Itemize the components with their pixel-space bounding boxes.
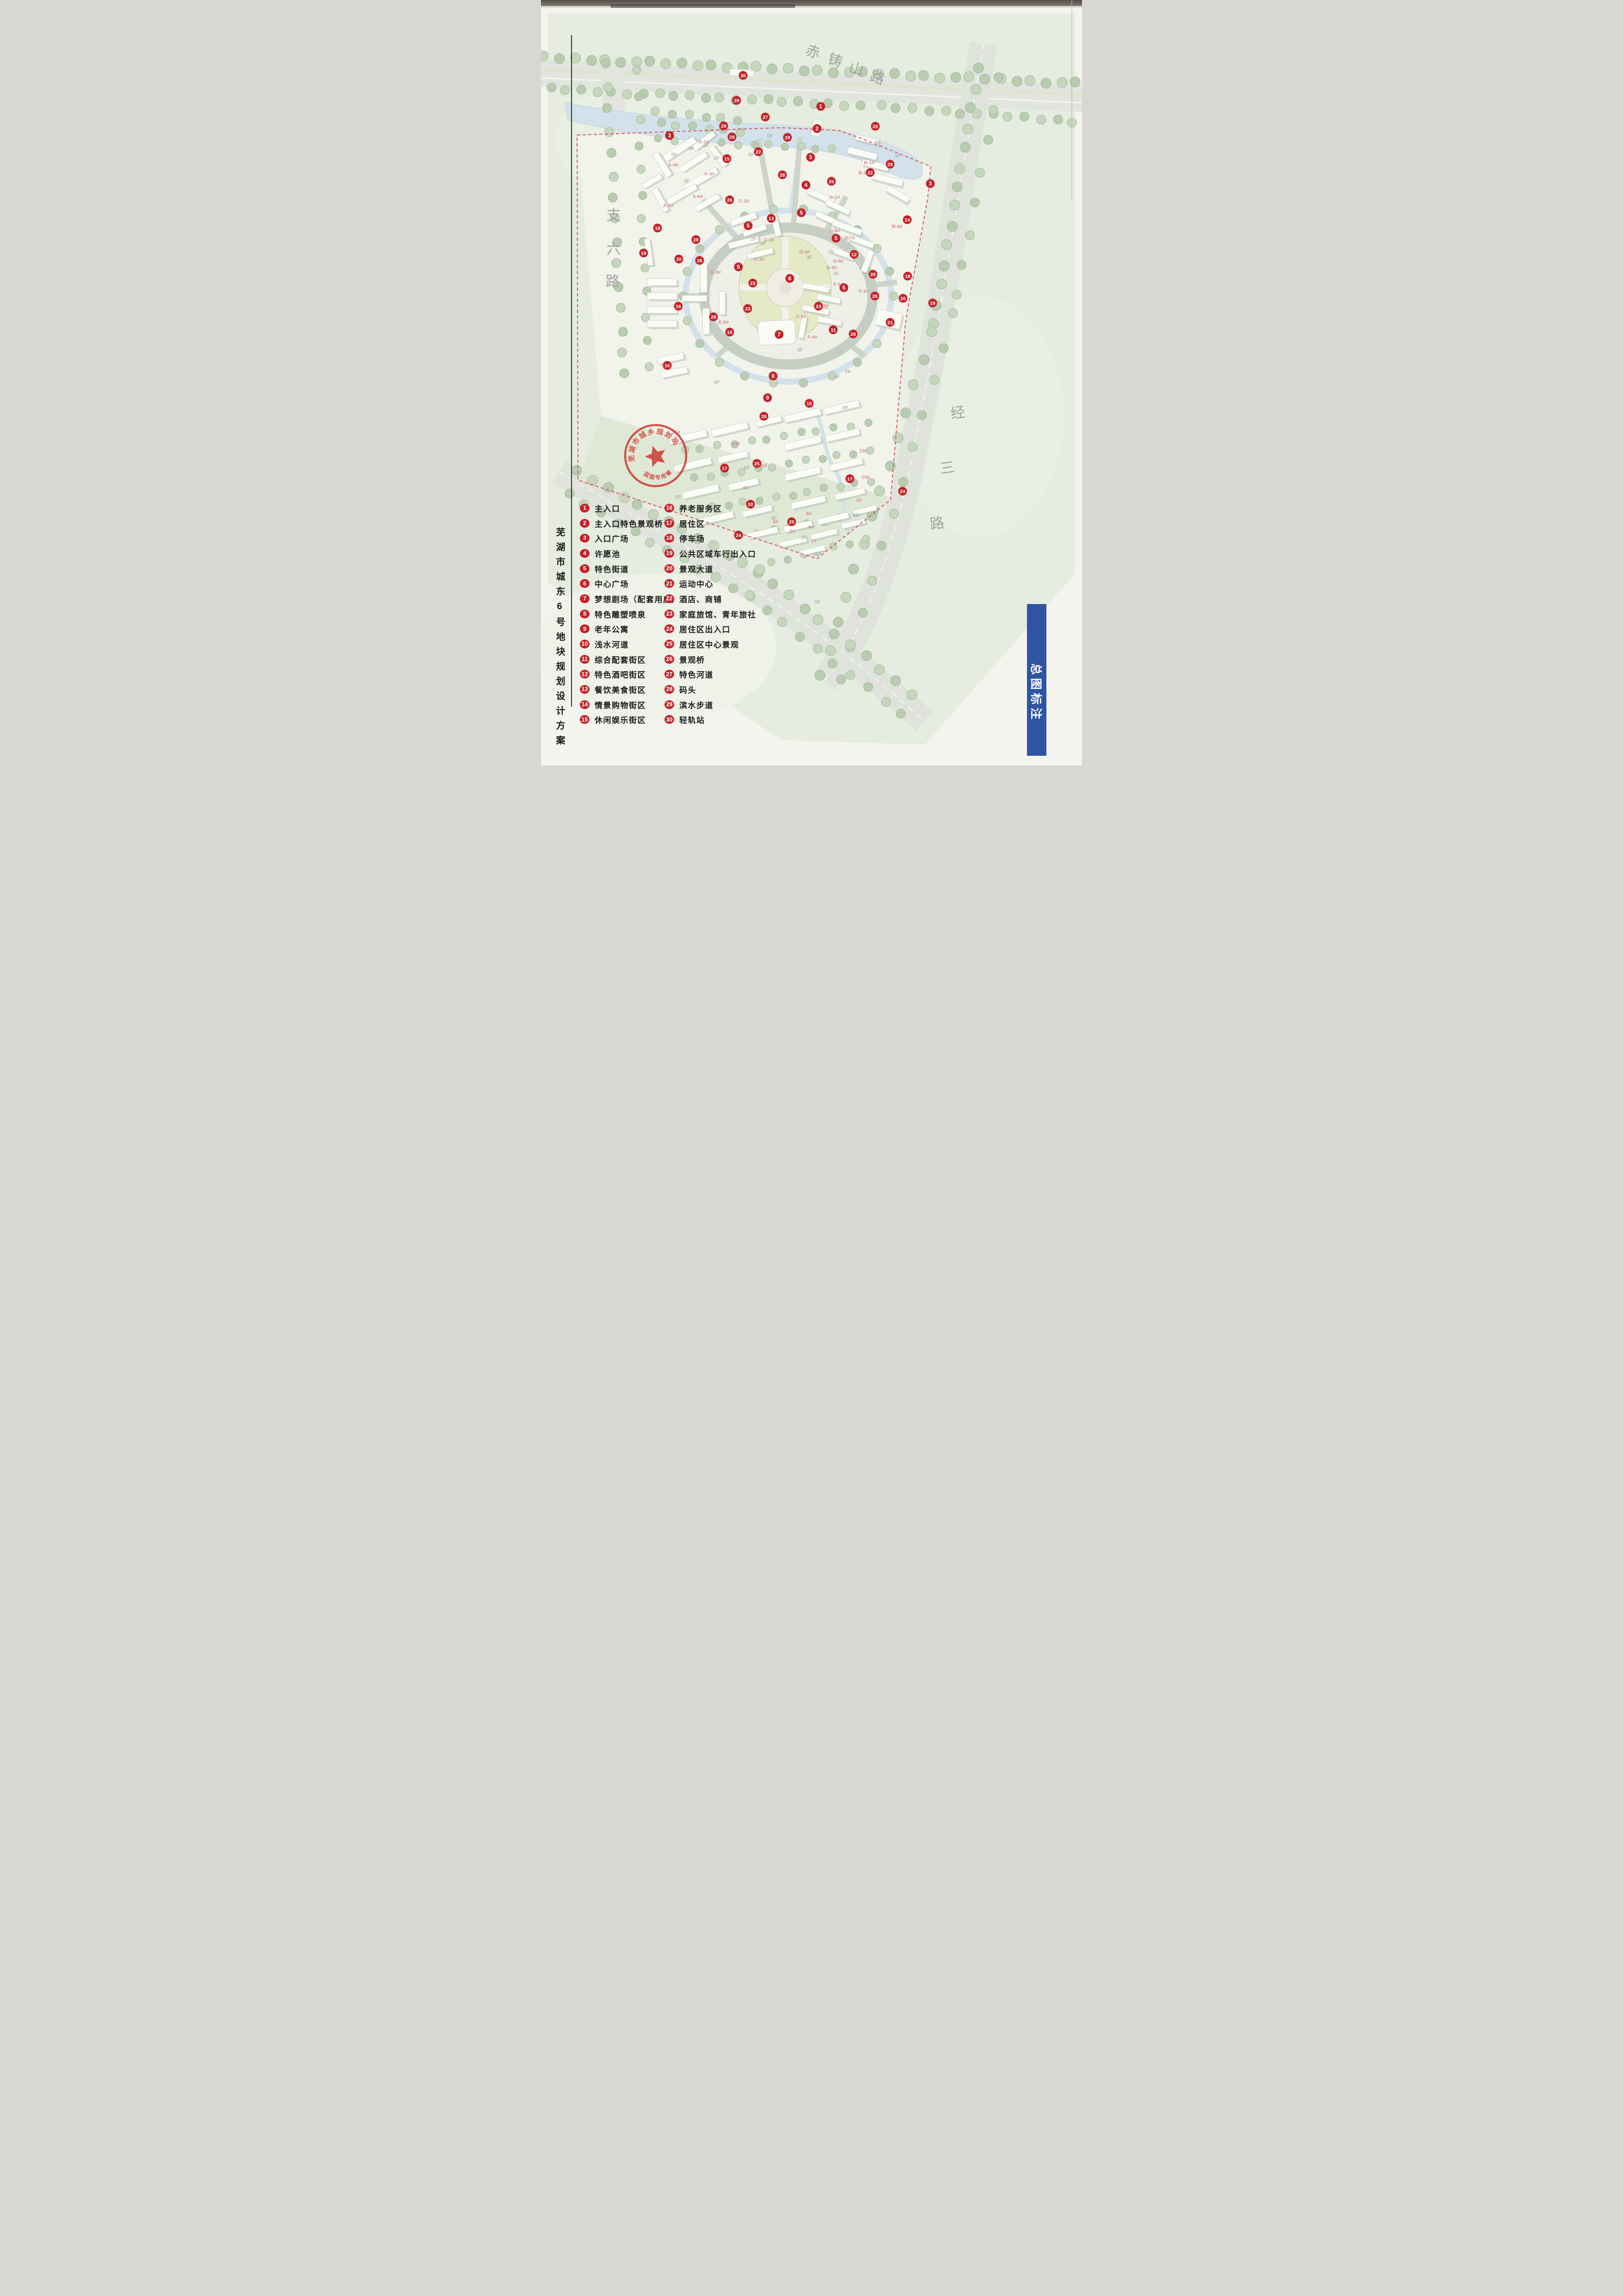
legend-number-badge: 10 xyxy=(580,640,590,648)
building-block xyxy=(647,279,679,288)
tree-icon xyxy=(643,336,652,345)
tree-icon xyxy=(701,93,711,103)
map-marker: 16 xyxy=(674,302,683,311)
map-marker-number: 15 xyxy=(724,156,730,162)
map-marker: 21 xyxy=(886,318,895,327)
map-marker: 24 xyxy=(898,487,907,496)
map-marker: 12 xyxy=(850,250,859,259)
road-name-char: 路 xyxy=(606,273,620,290)
legend-label: 居住区 xyxy=(679,518,705,529)
building-id-label: 14# xyxy=(732,441,740,447)
tree-icon xyxy=(881,697,891,707)
map-marker: 15 xyxy=(723,154,732,163)
tree-icon xyxy=(749,437,756,444)
legend-number-badge: 19 xyxy=(664,549,674,558)
legend-number-badge: 20 xyxy=(664,564,674,573)
map-marker-number: 16 xyxy=(664,363,670,369)
sheet-title-tab: 总图标注 xyxy=(1027,604,1046,756)
tree-icon xyxy=(965,103,975,113)
map-marker-number: 19 xyxy=(641,251,646,256)
legend-number-badge: 11 xyxy=(580,655,590,664)
tree-icon xyxy=(877,100,886,110)
tree-icon xyxy=(612,259,621,268)
building-id-label: 7# xyxy=(845,369,850,375)
tree-icon xyxy=(605,128,614,137)
building-id-label: C-3# xyxy=(754,257,765,262)
tree-icon xyxy=(690,474,698,481)
tree-icon xyxy=(634,93,643,101)
legend-item: 23家庭旅馆、青年旅社 xyxy=(664,606,756,622)
tree-icon xyxy=(765,141,772,148)
tree-icon xyxy=(819,455,826,463)
tree-icon xyxy=(893,433,903,443)
project-vertical-title: 芜湖市城东6号地块规划设计方案 xyxy=(553,527,566,759)
tree-icon xyxy=(560,86,570,95)
legend-item: 29滨水步道 xyxy=(664,697,756,712)
tree-icon xyxy=(965,231,975,240)
map-marker: 29 xyxy=(728,133,737,142)
map-marker: 26 xyxy=(695,256,704,265)
tree-icon xyxy=(957,260,966,270)
road-name-char: 路 xyxy=(929,514,946,532)
map-marker: 26 xyxy=(760,412,768,421)
tree-icon xyxy=(925,106,934,116)
map-marker: 22 xyxy=(866,168,875,177)
tree-icon xyxy=(908,103,917,112)
tree-icon xyxy=(716,113,725,122)
tree-icon xyxy=(840,101,849,111)
tree-icon xyxy=(1053,115,1063,124)
tree-icon xyxy=(617,348,627,357)
tree-icon xyxy=(654,135,662,142)
legend-number-badge: 23 xyxy=(664,610,674,618)
tree-icon xyxy=(947,221,958,231)
tree-icon xyxy=(685,110,694,118)
tree-icon xyxy=(864,682,873,691)
tree-icon xyxy=(939,261,949,271)
map-marker: 20 xyxy=(675,255,683,264)
map-marker: 3 xyxy=(806,153,815,162)
building-id-label: A-3# xyxy=(704,171,715,177)
tree-icon xyxy=(865,419,872,426)
building-id-label: B-4# xyxy=(892,224,903,229)
floor-count-label: 2F xyxy=(767,134,773,139)
map-marker: 17 xyxy=(720,464,729,473)
tree-icon xyxy=(1003,112,1012,121)
building-id-label: D-5# xyxy=(827,265,837,271)
tree-icon xyxy=(964,72,974,82)
tree-icon xyxy=(952,182,962,192)
tree-icon xyxy=(858,608,867,617)
building-id-label: A-1# xyxy=(699,139,709,145)
tree-icon xyxy=(918,70,928,80)
tree-icon xyxy=(907,690,917,700)
map-marker: 10 xyxy=(805,399,814,408)
building-id-label: F-5# xyxy=(796,314,806,320)
tree-icon xyxy=(934,73,945,83)
tree-icon xyxy=(763,436,770,444)
tree-icon xyxy=(799,66,810,76)
map-marker: 13 xyxy=(767,214,776,223)
tree-icon xyxy=(919,355,929,365)
tree-icon xyxy=(768,464,776,471)
tree-icon xyxy=(795,632,805,642)
tree-icon xyxy=(890,68,900,79)
map-marker: 18 xyxy=(653,224,662,233)
tree-icon xyxy=(715,358,724,367)
map-marker: 23 xyxy=(814,302,823,311)
legend-label: 轻轨站 xyxy=(679,714,705,725)
map-marker-number: 28 xyxy=(693,237,699,243)
map-marker-number: 28 xyxy=(850,332,856,337)
building-id-label: A-5# xyxy=(663,203,674,209)
tree-icon xyxy=(1057,77,1067,87)
map-marker-number: 3 xyxy=(929,180,932,187)
tree-icon xyxy=(623,90,632,99)
map-marker-number: 29 xyxy=(887,162,893,167)
tree-icon xyxy=(1041,78,1051,88)
map-marker: 28 xyxy=(709,313,718,321)
legend-item: 18停车场 xyxy=(664,531,756,546)
map-marker-number: 5 xyxy=(800,210,803,216)
legend-item: 21运动中心 xyxy=(664,576,756,591)
tree-icon xyxy=(571,53,581,63)
tree-icon xyxy=(950,200,960,210)
tree-icon xyxy=(645,363,653,371)
legend-item: 27特色河道 xyxy=(664,667,756,682)
legend-label: 养老服务区 xyxy=(679,502,722,514)
legend-number-badge: 9 xyxy=(580,624,590,633)
tree-icon xyxy=(951,72,961,82)
tree-icon xyxy=(908,442,917,451)
tree-icon xyxy=(547,83,556,92)
legend-label: 停车场 xyxy=(679,532,705,544)
building-id-label: B-1# xyxy=(864,160,875,166)
map-marker-number: 3 xyxy=(668,132,671,139)
tree-icon xyxy=(565,489,574,498)
tree-icon xyxy=(1012,76,1022,86)
tree-icon xyxy=(601,59,610,68)
tree-icon xyxy=(683,317,691,325)
tree-icon xyxy=(846,671,855,680)
map-marker-number: 17 xyxy=(847,476,853,482)
legend-label: 许愿池 xyxy=(595,548,621,559)
tree-icon xyxy=(899,477,908,487)
map-marker-number: 24 xyxy=(900,489,905,494)
legend-label: 特色街道 xyxy=(595,563,629,574)
paper-edge-right xyxy=(1071,0,1072,199)
tree-icon xyxy=(780,432,787,439)
legend-number-badge: 28 xyxy=(664,685,674,694)
map-marker: 16 xyxy=(663,361,672,370)
legend-number-badge: 1 xyxy=(580,504,590,512)
tree-icon xyxy=(702,113,711,122)
building-id-label: 6# xyxy=(743,485,749,491)
legend-item: 28码头 xyxy=(664,682,756,697)
map-marker: 4 xyxy=(802,181,811,190)
legend-label: 居住区中心景观 xyxy=(679,638,739,650)
tree-icon xyxy=(890,292,898,300)
map-marker-number: 2 xyxy=(816,125,819,132)
tree-icon xyxy=(695,339,704,348)
tree-icon xyxy=(813,615,823,625)
legend-item: 17居住区 xyxy=(664,516,756,531)
tree-icon xyxy=(790,492,797,500)
tree-icon xyxy=(908,380,918,390)
building-id-label: C-1# xyxy=(739,198,750,204)
tree-icon xyxy=(635,142,643,150)
tree-icon xyxy=(885,461,896,471)
legend-item: 30轻轨站 xyxy=(664,712,756,728)
tree-icon xyxy=(954,164,965,174)
map-marker-number: 5 xyxy=(737,264,740,270)
tree-icon xyxy=(955,109,965,118)
legend-number-badge: 27 xyxy=(664,670,674,679)
tree-icon xyxy=(677,58,687,68)
floor-count-label: 6F xyxy=(842,405,848,411)
map-marker: 23 xyxy=(744,304,752,313)
map-marker-number: 29 xyxy=(721,123,726,129)
map-marker-number: 3 xyxy=(809,154,812,160)
tree-icon xyxy=(849,451,857,458)
tree-icon xyxy=(813,644,823,653)
tree-icon xyxy=(554,54,565,64)
map-marker-number: 22 xyxy=(867,170,873,176)
tree-icon xyxy=(609,172,618,181)
tree-icon xyxy=(607,148,616,157)
map-marker-number: 6 xyxy=(788,275,792,282)
tree-icon xyxy=(901,408,911,418)
map-marker-number: 25 xyxy=(754,461,760,467)
legend-number-badge: 29 xyxy=(664,700,674,709)
tree-icon xyxy=(793,97,803,106)
tree-icon xyxy=(637,215,646,223)
map-marker-number: 26 xyxy=(761,414,767,420)
tree-icon xyxy=(975,168,984,177)
floor-count-label: 6F xyxy=(853,512,859,518)
tree-icon xyxy=(867,447,874,454)
building-id-label: E-6# xyxy=(719,320,729,325)
building-block xyxy=(703,309,712,336)
map-marker: 29 xyxy=(719,122,728,130)
road-name-char: 支 xyxy=(607,207,621,223)
map-marker: 14 xyxy=(903,216,912,224)
tree-icon xyxy=(572,465,582,475)
tree-icon xyxy=(896,709,905,718)
map-marker-number: 20 xyxy=(900,296,906,302)
tree-icon xyxy=(769,205,778,213)
map-marker: 29 xyxy=(871,122,880,131)
map-marker-number: 5 xyxy=(842,284,846,291)
map-marker-number: 28 xyxy=(870,272,876,278)
floor-count-label: 3F xyxy=(806,255,812,260)
legend-label: 休闲娱乐街区 xyxy=(595,714,646,725)
tree-icon xyxy=(767,64,777,74)
tree-icon xyxy=(798,142,805,150)
tree-icon xyxy=(948,309,958,318)
map-marker-number: 18 xyxy=(905,274,910,279)
legend-label: 主入口特色景观桥 xyxy=(595,518,663,529)
tree-icon xyxy=(874,665,885,675)
tree-icon xyxy=(633,66,641,74)
map-marker-number: 27 xyxy=(762,115,768,120)
map-marker: 30 xyxy=(739,71,748,80)
tree-icon xyxy=(636,116,645,124)
tree-icon xyxy=(994,73,1003,82)
map-marker: 26 xyxy=(827,177,836,186)
map-marker: 5 xyxy=(797,209,806,217)
map-marker-number: 9 xyxy=(766,395,769,401)
tree-icon xyxy=(833,451,840,459)
tree-icon xyxy=(756,497,763,505)
legend-label: 浅水河道 xyxy=(595,638,629,650)
tree-icon xyxy=(748,95,757,104)
sheet-title-text: 总图标注 xyxy=(1028,663,1045,722)
building-id-label: F-2# xyxy=(859,289,869,294)
map-marker-number: 28 xyxy=(785,135,790,141)
legend-number-badge: 22 xyxy=(664,594,674,603)
tree-icon xyxy=(618,327,627,336)
map-marker-number: 20 xyxy=(676,257,682,262)
building-id-label: D-8# xyxy=(833,259,844,264)
tree-icon xyxy=(734,142,742,149)
map-marker: 18 xyxy=(904,272,912,281)
legend-number-badge: 13 xyxy=(580,685,590,694)
map-marker: 16 xyxy=(725,328,734,337)
tree-icon xyxy=(763,605,772,615)
building-block xyxy=(647,307,679,315)
map-marker: 28 xyxy=(783,133,792,142)
tree-icon xyxy=(971,198,980,207)
floor-count-label: 3F xyxy=(797,347,803,353)
legend-item: 26景观桥 xyxy=(664,652,756,667)
map-marker-number: 29 xyxy=(873,124,878,130)
tree-icon xyxy=(603,83,613,92)
map-marker-number: 5 xyxy=(747,222,750,229)
legend-number-badge: 24 xyxy=(664,624,674,633)
map-marker: 7 xyxy=(775,330,784,339)
floor-count-label: 6F xyxy=(749,152,755,158)
map-marker: 23 xyxy=(749,279,757,288)
building-block xyxy=(719,291,727,316)
building-id-label: D-4# xyxy=(799,249,810,255)
tree-icon xyxy=(960,142,971,152)
floor-count-label: 6F xyxy=(771,516,777,521)
building-id-label: 10# xyxy=(861,475,870,480)
tree-icon xyxy=(639,191,647,200)
legend-label: 特色河道 xyxy=(679,668,713,680)
building-block xyxy=(647,293,679,302)
legend-number-badge: 2 xyxy=(580,519,590,528)
tree-icon xyxy=(873,339,881,348)
tree-icon xyxy=(891,104,900,113)
floor-count-label: 5F xyxy=(815,599,821,605)
floor-count-label: 6F xyxy=(801,535,807,541)
map-marker: 25 xyxy=(787,518,796,526)
tree-icon xyxy=(927,327,937,337)
tree-icon xyxy=(645,56,655,66)
tree-icon xyxy=(803,488,811,495)
floor-count-label: 6F xyxy=(744,465,750,471)
tree-icon xyxy=(802,456,810,463)
tree-icon xyxy=(856,101,865,110)
legend-number-badge: 6 xyxy=(580,579,590,588)
map-marker-number: 26 xyxy=(872,294,878,299)
legend-label: 情景购物街区 xyxy=(595,699,646,710)
map-marker-number: 28 xyxy=(711,315,716,320)
tree-icon xyxy=(651,107,659,115)
legend-label: 滨水步道 xyxy=(679,699,713,710)
floor-count-label: 6F xyxy=(676,494,682,500)
tree-icon xyxy=(608,193,617,202)
legend-label: 酒店、商铺 xyxy=(679,593,722,605)
tree-icon xyxy=(671,122,680,130)
tree-icon xyxy=(773,493,780,500)
tree-icon xyxy=(577,85,586,94)
road-name-char: 六 xyxy=(607,241,621,257)
map-marker-number: 7 xyxy=(778,331,781,338)
tree-icon xyxy=(669,91,678,100)
legend-label: 中心广场 xyxy=(595,578,629,589)
tree-icon xyxy=(707,473,715,481)
legend-label: 老年公寓 xyxy=(595,623,629,635)
map-marker-number: 26 xyxy=(780,173,785,178)
road-name-char: 经 xyxy=(950,404,966,422)
legend-label: 餐饮美食街区 xyxy=(595,684,646,695)
legend-number-badge: 5 xyxy=(580,564,590,573)
map-marker-number: 29 xyxy=(729,135,735,140)
map-marker-number: 16 xyxy=(676,304,681,309)
tree-icon xyxy=(815,670,825,680)
tree-icon xyxy=(825,645,836,655)
tree-icon xyxy=(696,445,703,453)
tree-icon xyxy=(740,372,749,380)
tree-icon xyxy=(689,122,697,130)
map-marker-number: 14 xyxy=(904,217,910,223)
legend-number-badge: 25 xyxy=(664,640,674,648)
building-id-label: 2# xyxy=(790,529,795,534)
scanned-masterplan-page: A-1#A-3#A-4#A-5#A-6#B-1#B-2#B-4#C-1#C-2#… xyxy=(541,0,1082,765)
map-marker: 27 xyxy=(761,113,770,122)
legend-number-badge: 7 xyxy=(580,594,590,603)
tree-icon xyxy=(973,63,984,73)
floor-count-label: 5F xyxy=(671,152,677,158)
tree-icon xyxy=(853,358,861,367)
tree-icon xyxy=(845,640,855,650)
building-id-label: A-4# xyxy=(668,162,679,168)
building-id-label: 1# xyxy=(811,538,816,544)
floor-count-label: 2F xyxy=(714,155,720,161)
map-marker-number: 11 xyxy=(830,327,836,333)
floor-count-label: 5F xyxy=(689,146,695,152)
legend-number-badge: 16 xyxy=(664,504,674,512)
tree-icon xyxy=(889,509,898,518)
map-marker: 29 xyxy=(732,96,741,105)
map-marker: 19 xyxy=(639,249,648,258)
legend-number-badge: 26 xyxy=(664,655,674,664)
tree-icon xyxy=(715,93,724,102)
map-marker-number: 23 xyxy=(745,306,750,312)
legend-number-badge: 30 xyxy=(664,715,674,724)
legend-item: 20景观大道 xyxy=(664,561,756,576)
tree-icon xyxy=(784,556,791,563)
map-marker: 1 xyxy=(817,102,825,111)
tree-icon xyxy=(1020,112,1029,121)
map-marker: 9 xyxy=(763,394,772,402)
tree-icon xyxy=(917,410,927,420)
tree-icon xyxy=(695,244,704,253)
legend-label: 码头 xyxy=(679,684,696,695)
